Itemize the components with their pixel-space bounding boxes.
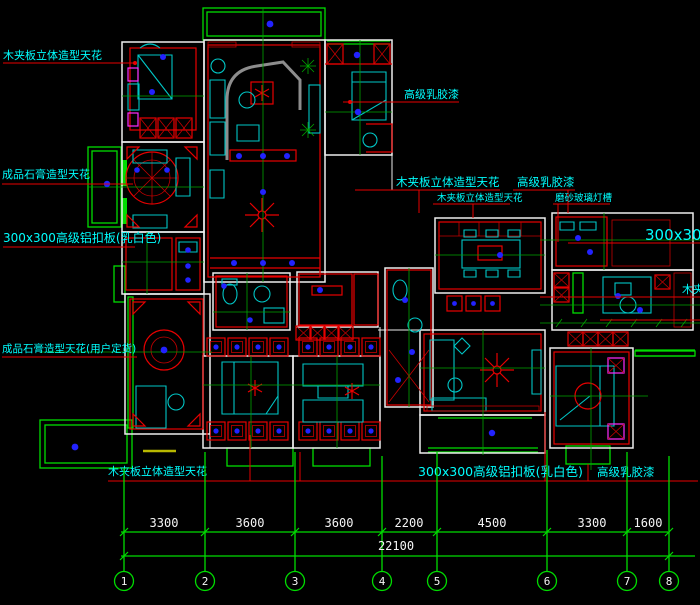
svg-text:4: 4 bbox=[379, 575, 386, 588]
label-top-left-wood-ceiling[interactable]: 木夹板立体造型天花 bbox=[3, 48, 102, 62]
label-bottom-latex-paint[interactable]: 高级乳胶漆 bbox=[597, 465, 655, 479]
dim-2200[interactable]: 2200 bbox=[395, 516, 424, 530]
grid-bubble-1[interactable]: 1 bbox=[115, 572, 134, 591]
svg-text:8: 8 bbox=[666, 575, 673, 588]
label-top-latex-paint[interactable]: 高级乳胶漆 bbox=[404, 87, 459, 101]
dim-3300-b[interactable]: 3300 bbox=[578, 516, 607, 530]
leader-lines bbox=[2, 61, 700, 481]
dim-3600-b[interactable]: 3600 bbox=[325, 516, 354, 530]
dim-total[interactable]: 22100 bbox=[378, 539, 414, 553]
dim-4500[interactable]: 4500 bbox=[478, 516, 507, 530]
svg-text:3: 3 bbox=[292, 575, 299, 588]
grid-bubble-4[interactable]: 4 bbox=[373, 572, 392, 591]
grid-bubble-5[interactable]: 5 bbox=[428, 572, 447, 591]
grid-bubble-3[interactable]: 3 bbox=[286, 572, 305, 591]
cad-drawing-canvas[interactable]: 木夹板立体造型天花 成品石膏造型天花 300x300高级铝扣板(乳白色) 成品石… bbox=[0, 0, 700, 605]
label-left-gypsum-ceiling[interactable]: 成品石膏造型天花 bbox=[2, 167, 90, 181]
label-mid-wood-ceiling-large[interactable]: 木夹板立体造型天花 bbox=[396, 175, 500, 189]
floor-plan-svg: 木夹板立体造型天花 成品石膏造型天花 300x300高级铝扣板(乳白色) 成品石… bbox=[0, 0, 700, 605]
grid-bubble-8[interactable]: 8 bbox=[660, 572, 679, 591]
dim-1600[interactable]: 1600 bbox=[634, 516, 663, 530]
label-bottom-alum-panel[interactable]: 300x300高级铝扣板(乳白色) bbox=[418, 464, 583, 479]
svg-text:7: 7 bbox=[624, 575, 631, 588]
label-mid-wood-ceiling-small[interactable]: 木夹板立体造型天花 bbox=[437, 192, 523, 204]
label-left-alum-panel[interactable]: 300x300高级铝扣板(乳白色) bbox=[3, 230, 161, 245]
grid-bubble-6[interactable]: 6 bbox=[538, 572, 557, 591]
label-right-alum-clipped[interactable]: 300x300 bbox=[645, 226, 700, 244]
label-right-wood-clipped[interactable]: 木夹板 bbox=[682, 282, 700, 296]
dimension-values: 3300 3600 3600 2200 4500 3300 1600 22100 bbox=[150, 516, 663, 553]
label-frosted-glass-trough[interactable]: 磨砂玻璃灯槽 bbox=[555, 192, 613, 204]
annotation-labels: 木夹板立体造型天花 成品石膏造型天花 300x300高级铝扣板(乳白色) 成品石… bbox=[2, 48, 700, 479]
svg-text:1: 1 bbox=[121, 575, 128, 588]
grid-bubbles: 1 2 3 4 5 6 7 8 bbox=[115, 572, 679, 591]
svg-text:2: 2 bbox=[202, 575, 209, 588]
svg-text:5: 5 bbox=[434, 575, 441, 588]
label-bottom-wood-ceiling[interactable]: 木夹板立体造型天花 bbox=[108, 464, 207, 478]
dim-3300-a[interactable]: 3300 bbox=[150, 516, 179, 530]
label-mid-latex-paint[interactable]: 高级乳胶漆 bbox=[517, 175, 575, 189]
grid-bubble-2[interactable]: 2 bbox=[196, 572, 215, 591]
grid-bubble-7[interactable]: 7 bbox=[618, 572, 637, 591]
dim-3600-a[interactable]: 3600 bbox=[236, 516, 265, 530]
svg-text:6: 6 bbox=[544, 575, 551, 588]
label-left-gypsum-custom[interactable]: 成品石膏造型天花(用户定货) bbox=[2, 342, 136, 355]
